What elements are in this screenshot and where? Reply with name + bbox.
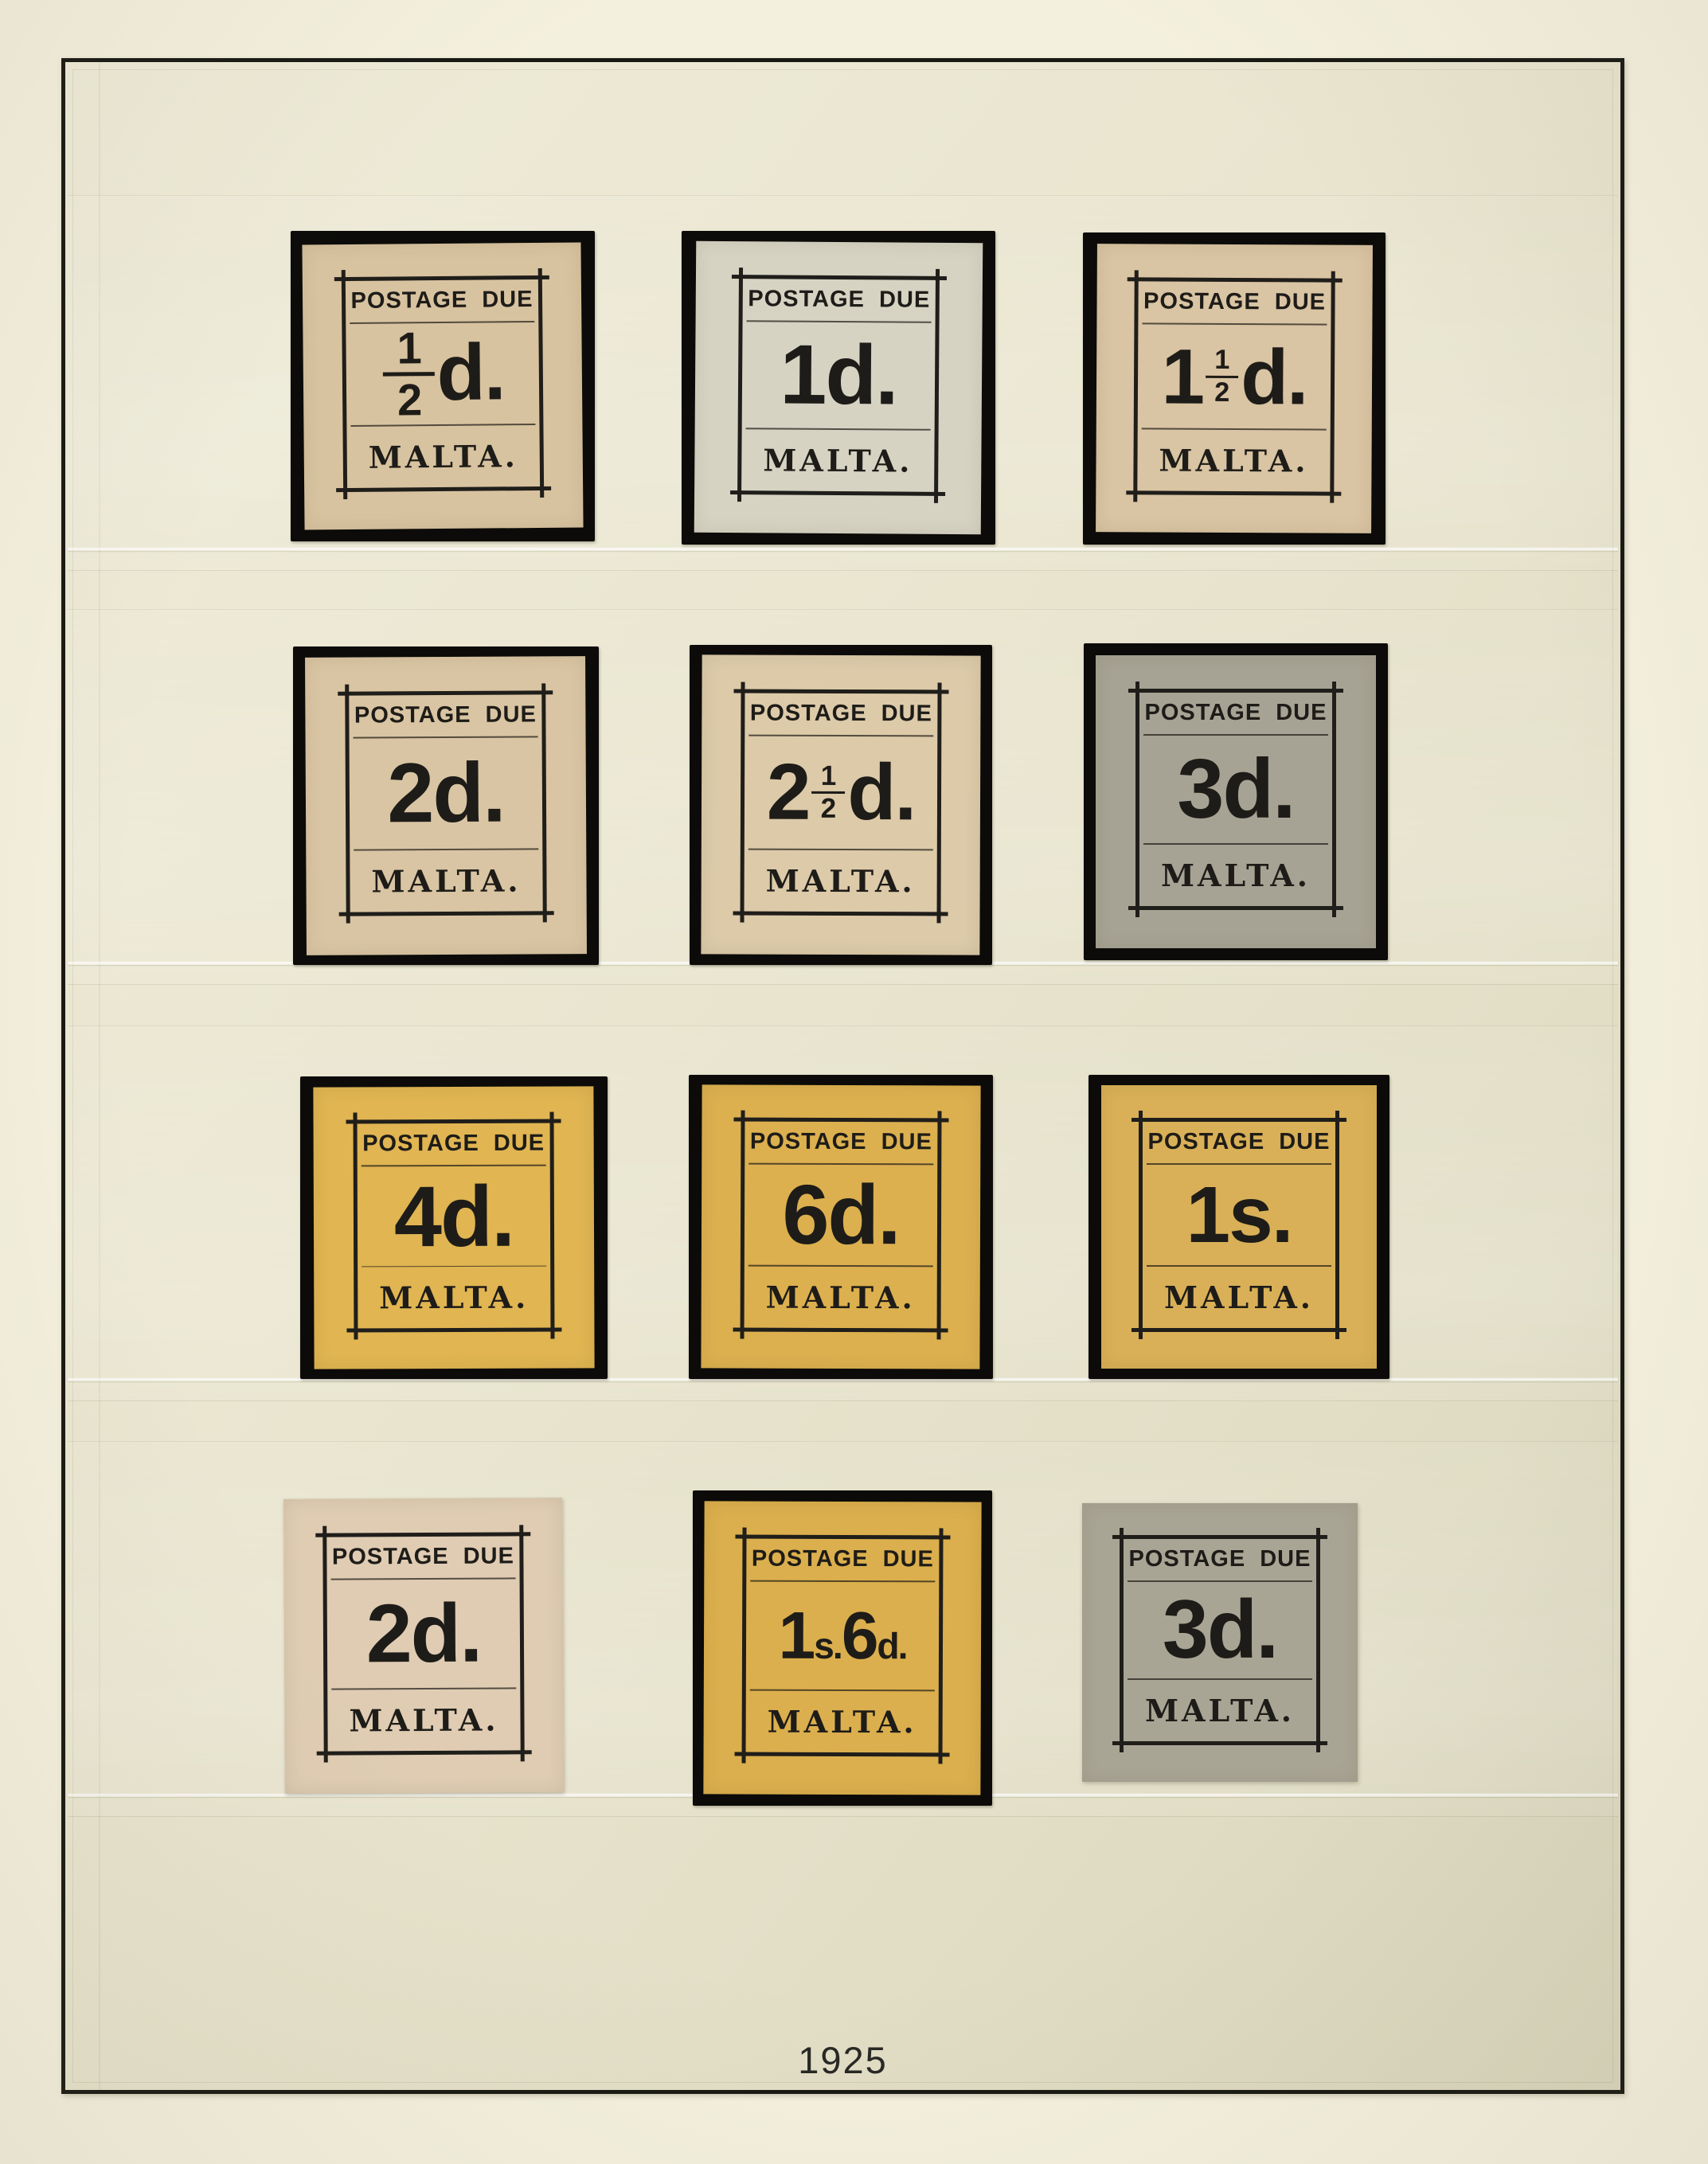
denomination-text: 2d. xyxy=(387,745,505,842)
stamp-halfpenny: POSTAGE DUE12d.MALTA. xyxy=(291,231,595,541)
postage-due-label: POSTAGE DUE xyxy=(358,1131,550,1158)
stamp-paper: POSTAGE DUE6d.MALTA. xyxy=(701,1084,980,1369)
stamp-design: POSTAGE DUE12d.MALTA. xyxy=(342,275,544,492)
denomination-value: 2d. xyxy=(387,745,505,842)
separator-rule-lower xyxy=(354,848,538,850)
stamp-design: POSTAGE DUE1s.MALTA. xyxy=(1139,1118,1339,1332)
denomination-area: 212d. xyxy=(745,736,937,850)
stamp-paper: POSTAGE DUE3d.MALTA. xyxy=(1096,655,1376,948)
postage-due-label: POSTAGE DUE xyxy=(745,701,937,728)
design-frame-line xyxy=(938,1528,943,1764)
stamp-design: POSTAGE DUE3d.MALTA. xyxy=(1120,1535,1320,1745)
stamp-design: POSTAGE DUE2d.MALTA. xyxy=(322,1532,524,1755)
denomination-value: 2d. xyxy=(365,1586,481,1682)
fraction-denominator: 2 xyxy=(397,379,421,420)
stamp-paper: POSTAGE DUE4d.MALTA. xyxy=(313,1086,594,1369)
separator-rule-lower xyxy=(1142,428,1327,430)
stamp-design: POSTAGE DUE1s.6d.MALTA. xyxy=(742,1535,944,1757)
malta-label: MALTA. xyxy=(358,1279,550,1316)
stamp-paper: POSTAGE DUE12d.MALTA. xyxy=(302,242,583,529)
malta-label: MALTA. xyxy=(1137,442,1330,479)
stamp-design: POSTAGE DUE212d.MALTA. xyxy=(741,689,942,916)
denomination-text: 1 xyxy=(778,1597,814,1674)
design-frame-line xyxy=(1112,1741,1327,1745)
denomination-value: 212d. xyxy=(767,747,916,839)
design-frame-line xyxy=(1132,1328,1346,1332)
denomination-text: d. xyxy=(847,747,915,838)
denomination-value: 3d. xyxy=(1177,741,1294,838)
postage-due-label: POSTAGE DUE xyxy=(1124,1546,1316,1572)
denomination-area: 1s. xyxy=(1143,1165,1335,1265)
stamp-design: POSTAGE DUE2d.MALTA. xyxy=(345,690,546,916)
fraction-denominator: 2 xyxy=(1214,380,1229,405)
postage-due-label: POSTAGE DUE xyxy=(745,1129,937,1156)
design-frame-line xyxy=(735,1752,950,1757)
denomination-text: 3d. xyxy=(1177,741,1294,838)
page-inner: POSTAGE DUE12d.MALTA.POSTAGE DUE1d.MALTA… xyxy=(65,62,1620,2090)
malta-label: MALTA. xyxy=(347,438,540,475)
design-content: POSTAGE DUE3d.MALTA. xyxy=(1124,1539,1316,1741)
denomination-value: 1s. xyxy=(1186,1170,1292,1261)
stamp-two-pence: POSTAGE DUE2d.MALTA. xyxy=(293,646,599,965)
postage-due-label: POSTAGE DUE xyxy=(1143,1129,1335,1155)
postage-due-label: POSTAGE DUE xyxy=(746,1546,939,1573)
denomination-text: 6d. xyxy=(782,1166,900,1264)
design-content: POSTAGE DUE1s.MALTA. xyxy=(1143,1122,1335,1328)
postage-due-label: POSTAGE DUE xyxy=(743,286,936,314)
design-frame-line xyxy=(549,1112,554,1339)
fraction-denominator: 2 xyxy=(821,796,837,822)
design-content: POSTAGE DUE1d.MALTA. xyxy=(741,279,936,492)
album-page: POSTAGE DUE12d.MALTA.POSTAGE DUE1d.MALTA… xyxy=(61,58,1624,2094)
denomination-value: 1s.6d. xyxy=(778,1597,906,1675)
stamp-paper: POSTAGE DUE1s.6d.MALTA. xyxy=(703,1501,981,1795)
stamp-one-shilling-sixpence: POSTAGE DUE1s.6d.MALTA. xyxy=(693,1490,992,1806)
separator-rule-lower xyxy=(1147,1265,1331,1267)
denomination-area: 4d. xyxy=(358,1166,550,1266)
postage-due-label: POSTAGE DUE xyxy=(1138,288,1331,315)
denomination-area: 2d. xyxy=(350,737,543,849)
design-frame-line xyxy=(937,1111,942,1339)
stamp-design: POSTAGE DUE3d.MALTA. xyxy=(1135,689,1336,910)
stamp-paper: POSTAGE DUE3d.MALTA. xyxy=(1082,1503,1358,1782)
malta-label: MALTA. xyxy=(1143,1279,1335,1315)
stamp-two-pence-loose: POSTAGE DUE2d.MALTA. xyxy=(284,1498,563,1793)
denomination-area: 112d. xyxy=(1138,324,1331,428)
denomination-value: 6d. xyxy=(782,1166,900,1264)
design-content: POSTAGE DUE3d.MALTA. xyxy=(1139,693,1332,906)
denomination-text: 3d. xyxy=(1163,1583,1277,1678)
stamp-one-shilling: POSTAGE DUE1s.MALTA. xyxy=(1089,1075,1389,1379)
stamp-design: POSTAGE DUE112d.MALTA. xyxy=(1133,277,1335,495)
stamp-three-halfpence: POSTAGE DUE112d.MALTA. xyxy=(1083,232,1386,545)
malta-label: MALTA. xyxy=(745,1279,937,1316)
design-frame-line xyxy=(1128,906,1343,910)
postage-due-label: POSTAGE DUE xyxy=(326,1543,519,1570)
malta-label: MALTA. xyxy=(327,1701,520,1738)
stamp-design: POSTAGE DUE6d.MALTA. xyxy=(741,1118,942,1333)
malta-label: MALTA. xyxy=(1124,1693,1316,1728)
stamp-paper: POSTAGE DUE112d.MALTA. xyxy=(1096,244,1373,533)
design-content: POSTAGE DUE212d.MALTA. xyxy=(745,693,938,912)
year-label: 1925 xyxy=(65,2038,1620,2082)
design-content: POSTAGE DUE2d.MALTA. xyxy=(349,694,542,912)
denomination-text: d. xyxy=(1241,332,1307,422)
denomination-text: d. xyxy=(877,1624,906,1667)
stamp-paper: POSTAGE DUE2d.MALTA. xyxy=(305,656,587,955)
separator-rule-lower xyxy=(746,428,931,431)
malta-label: MALTA. xyxy=(745,863,937,900)
stamp-twopence-halfpenny: POSTAGE DUE212d.MALTA. xyxy=(690,645,992,965)
separator-rule-lower xyxy=(1143,843,1328,845)
stamp-paper: POSTAGE DUE1d.MALTA. xyxy=(694,241,983,535)
separator-rule-lower xyxy=(1128,1678,1312,1680)
denomination-area: 1d. xyxy=(742,322,936,429)
malta-label: MALTA. xyxy=(746,1704,939,1740)
fraction-numerator: 1 xyxy=(397,328,420,369)
denomination-area: 3d. xyxy=(1139,736,1332,843)
design-frame-line xyxy=(1316,1528,1320,1752)
stamp-paper: POSTAGE DUE1s.MALTA. xyxy=(1101,1085,1377,1369)
design-content: POSTAGE DUE6d.MALTA. xyxy=(745,1122,938,1329)
denomination-area: 3d. xyxy=(1124,1582,1316,1678)
denomination-text: 2 xyxy=(767,747,810,838)
denomination-area: 12d. xyxy=(346,322,539,425)
design-content: POSTAGE DUE1s.6d.MALTA. xyxy=(746,1539,940,1753)
design-content: POSTAGE DUE4d.MALTA. xyxy=(358,1123,551,1329)
design-frame-line xyxy=(1332,682,1336,917)
fraction-numerator: 1 xyxy=(1214,348,1229,373)
fraction-1-2: 12 xyxy=(811,764,845,822)
malta-label: MALTA. xyxy=(741,442,934,479)
denomination-area: 6d. xyxy=(745,1165,937,1266)
stamp-six-pence: POSTAGE DUE6d.MALTA. xyxy=(689,1075,993,1379)
design-frame-line xyxy=(1335,1111,1339,1339)
design-content: POSTAGE DUE112d.MALTA. xyxy=(1137,281,1331,491)
denomination-area: 2d. xyxy=(327,1579,521,1688)
design-frame-line xyxy=(733,1328,948,1333)
separator-rule-lower xyxy=(750,1689,935,1692)
stamp-one-penny: POSTAGE DUE1d.MALTA. xyxy=(682,231,995,545)
denomination-area: 1s.6d. xyxy=(746,1582,939,1690)
separator-rule-lower xyxy=(362,1265,546,1267)
fraction-numerator: 1 xyxy=(821,764,837,789)
denomination-text: 1 xyxy=(1161,331,1203,421)
denomination-text: 1s. xyxy=(1186,1170,1292,1261)
separator-rule-lower xyxy=(748,1265,933,1268)
stamp-three-pence: POSTAGE DUE3d.MALTA. xyxy=(1084,643,1388,960)
malta-label: MALTA. xyxy=(350,862,542,899)
stamp-paper: POSTAGE DUE212d.MALTA. xyxy=(701,654,980,955)
denomination-text: 4d. xyxy=(394,1166,514,1266)
denomination-text: 1d. xyxy=(780,326,897,424)
stamp-four-pence: POSTAGE DUE4d.MALTA. xyxy=(300,1076,608,1379)
denomination-value: 112d. xyxy=(1161,331,1307,422)
denomination-text: 6 xyxy=(842,1597,877,1674)
denomination-text: 2d. xyxy=(365,1586,481,1682)
postage-due-label: POSTAGE DUE xyxy=(1139,700,1332,726)
postage-due-label: POSTAGE DUE xyxy=(346,287,538,314)
fraction-1-2: 12 xyxy=(383,328,435,421)
denomination-value: 4d. xyxy=(394,1166,514,1266)
stamp-three-pence-loose: POSTAGE DUE3d.MALTA. xyxy=(1082,1503,1358,1782)
denomination-value: 12d. xyxy=(381,327,505,420)
denomination-value: 3d. xyxy=(1163,1583,1277,1678)
design-frame-line xyxy=(936,682,941,923)
design-frame-line xyxy=(733,912,948,916)
fraction-1-2: 12 xyxy=(1206,348,1239,405)
separator-rule-lower xyxy=(748,849,933,851)
postage-due-label: POSTAGE DUE xyxy=(349,701,541,728)
denomination-text: s. xyxy=(814,1624,842,1667)
malta-label: MALTA. xyxy=(1139,857,1332,893)
design-content: POSTAGE DUE2d.MALTA. xyxy=(326,1536,520,1751)
design-content: POSTAGE DUE12d.MALTA. xyxy=(346,279,540,488)
stamp-paper: POSTAGE DUE2d.MALTA. xyxy=(283,1498,564,1794)
stamp-design: POSTAGE DUE4d.MALTA. xyxy=(354,1119,555,1333)
denomination-value: 1d. xyxy=(780,326,897,424)
separator-rule-lower xyxy=(331,1687,516,1689)
stamp-design: POSTAGE DUE1d.MALTA. xyxy=(737,275,940,496)
design-frame-line xyxy=(346,1328,561,1333)
denomination-text: d. xyxy=(436,327,505,420)
